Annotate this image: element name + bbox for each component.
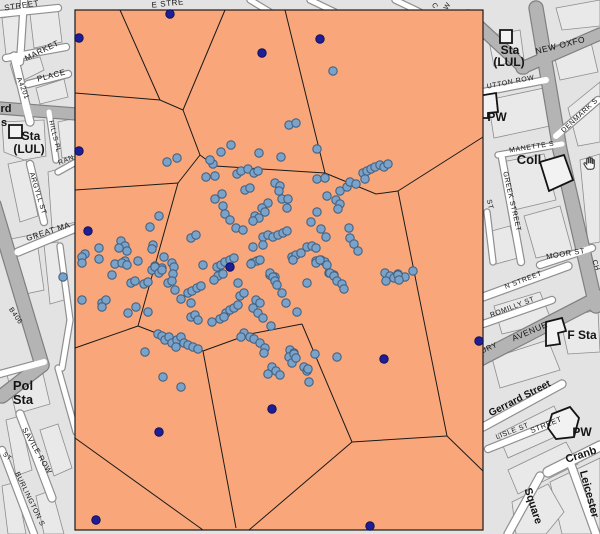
building-outline [500, 30, 512, 43]
death-point[interactable] [171, 286, 179, 294]
death-point[interactable] [220, 313, 228, 321]
death-point[interactable] [254, 167, 262, 175]
death-point[interactable] [177, 383, 185, 391]
death-point[interactable] [345, 224, 353, 232]
pump-point[interactable] [316, 35, 324, 43]
death-point[interactable] [289, 256, 297, 264]
death-point[interactable] [247, 260, 255, 268]
death-point[interactable] [409, 267, 417, 275]
map-viewport[interactable]: STREETMARKETPLACEA4201rdsSta(LUL)HILLS P… [0, 0, 600, 534]
map-label: (LUL) [493, 55, 524, 69]
death-point[interactable] [194, 316, 202, 324]
death-point[interactable] [108, 271, 116, 279]
death-point[interactable] [218, 190, 226, 198]
study-area-rect [75, 10, 483, 530]
pump-point[interactable] [155, 428, 163, 436]
death-point[interactable] [246, 184, 254, 192]
death-point[interactable] [395, 276, 403, 284]
map-label: Pol [13, 378, 33, 393]
death-point[interactable] [256, 256, 264, 264]
map-label: s [1, 117, 7, 129]
pump-point[interactable] [380, 355, 388, 363]
map-label: PW [487, 110, 507, 124]
death-point[interactable] [78, 259, 86, 267]
death-point[interactable] [124, 309, 132, 317]
map-label: Sta [22, 129, 41, 143]
death-point[interactable] [160, 253, 168, 261]
death-point[interactable] [317, 225, 325, 233]
map-label: PW [572, 425, 592, 439]
map-label: rd [1, 103, 12, 115]
death-point[interactable] [217, 148, 225, 156]
death-point[interactable] [219, 270, 227, 278]
pump-point[interactable] [366, 522, 374, 530]
pump-point[interactable] [84, 227, 92, 235]
death-point[interactable] [144, 278, 152, 286]
death-point[interactable] [329, 67, 337, 75]
death-point[interactable] [208, 318, 216, 326]
death-point[interactable] [277, 153, 285, 161]
pump-point[interactable] [268, 405, 276, 413]
death-point[interactable] [305, 378, 313, 386]
death-point[interactable] [194, 345, 202, 353]
death-point[interactable] [323, 261, 331, 269]
pump-point[interactable] [75, 147, 83, 155]
death-point[interactable] [340, 285, 348, 293]
death-point[interactable] [95, 255, 103, 263]
death-point[interactable] [206, 156, 214, 164]
death-point[interactable] [172, 343, 180, 351]
death-point[interactable] [259, 241, 267, 249]
death-point[interactable] [230, 254, 238, 262]
map-label: (LUL) [13, 142, 44, 156]
building-outline [9, 125, 22, 138]
death-point[interactable] [267, 322, 275, 330]
death-point[interactable] [297, 249, 305, 257]
death-point[interactable] [283, 227, 291, 235]
death-point[interactable] [148, 245, 156, 253]
death-point[interactable] [313, 175, 321, 183]
death-point[interactable] [123, 261, 131, 269]
death-point[interactable] [155, 212, 163, 220]
death-point[interactable] [131, 277, 139, 285]
death-point[interactable] [192, 231, 200, 239]
pump-point[interactable] [475, 337, 483, 345]
voronoi-overlay [75, 10, 483, 530]
death-point[interactable] [293, 308, 301, 316]
death-point[interactable] [199, 261, 207, 269]
death-point[interactable] [322, 233, 330, 241]
death-point[interactable] [226, 216, 234, 224]
death-point[interactable] [273, 281, 281, 289]
death-point[interactable] [168, 277, 176, 285]
death-point[interactable] [59, 273, 67, 281]
death-point[interactable] [240, 289, 248, 297]
death-point[interactable] [141, 348, 149, 356]
death-point[interactable] [384, 160, 392, 168]
death-point[interactable] [177, 295, 185, 303]
death-point[interactable] [303, 279, 311, 287]
death-point[interactable] [284, 195, 292, 203]
death-point[interactable] [115, 244, 123, 252]
map-label: Coll [517, 152, 542, 167]
map-label: Sta [13, 392, 34, 407]
death-point[interactable] [187, 299, 195, 307]
death-point[interactable] [276, 371, 284, 379]
death-point[interactable] [313, 145, 321, 153]
death-point[interactable] [146, 223, 154, 231]
death-point[interactable] [158, 266, 166, 274]
death-point[interactable] [307, 218, 315, 226]
death-point[interactable] [163, 158, 171, 166]
death-point[interactable] [132, 303, 140, 311]
death-point[interactable] [234, 279, 242, 287]
death-point[interactable] [321, 174, 329, 182]
death-point[interactable] [292, 119, 300, 127]
pump-point[interactable] [258, 49, 266, 57]
map-canvas[interactable]: STREETMARKETPLACEA4201rdsSta(LUL)HILLS P… [0, 0, 600, 534]
death-point[interactable] [173, 154, 181, 162]
death-point[interactable] [239, 226, 247, 234]
death-point[interactable] [354, 247, 362, 255]
death-point[interactable] [219, 202, 227, 210]
death-point[interactable] [210, 276, 218, 284]
death-point[interactable] [382, 277, 390, 285]
death-point[interactable] [78, 296, 86, 304]
pump-point[interactable] [92, 516, 100, 524]
death-point[interactable] [334, 205, 342, 213]
death-point[interactable] [278, 289, 286, 297]
death-point[interactable] [323, 192, 331, 200]
map-label: F Sta [567, 328, 597, 342]
death-point[interactable] [260, 349, 268, 357]
death-point[interactable] [202, 173, 210, 181]
death-point[interactable] [197, 282, 205, 290]
death-point[interactable] [211, 172, 219, 180]
death-point[interactable] [249, 217, 257, 225]
death-point[interactable] [255, 149, 263, 157]
death-point[interactable] [275, 187, 283, 195]
death-point[interactable] [95, 244, 103, 252]
death-point[interactable] [249, 243, 257, 251]
death-point[interactable] [292, 354, 300, 362]
death-point[interactable] [283, 204, 291, 212]
death-point[interactable] [282, 299, 290, 307]
death-point[interactable] [234, 301, 242, 309]
death-point[interactable] [237, 333, 245, 341]
death-point[interactable] [227, 141, 235, 149]
pump-point[interactable] [226, 263, 234, 271]
pump-point[interactable] [75, 34, 83, 42]
death-point[interactable] [144, 308, 152, 316]
death-point[interactable] [352, 180, 360, 188]
death-point[interactable] [304, 365, 312, 373]
death-point[interactable] [361, 175, 369, 183]
death-point[interactable] [312, 244, 320, 252]
death-point[interactable] [98, 303, 106, 311]
death-point[interactable] [333, 353, 341, 361]
death-point[interactable] [159, 373, 167, 381]
pump-point[interactable] [166, 10, 174, 18]
death-point[interactable] [259, 314, 267, 322]
death-point[interactable] [134, 257, 142, 265]
death-point[interactable] [313, 208, 321, 216]
death-point[interactable] [123, 247, 131, 255]
death-point[interactable] [311, 350, 319, 358]
